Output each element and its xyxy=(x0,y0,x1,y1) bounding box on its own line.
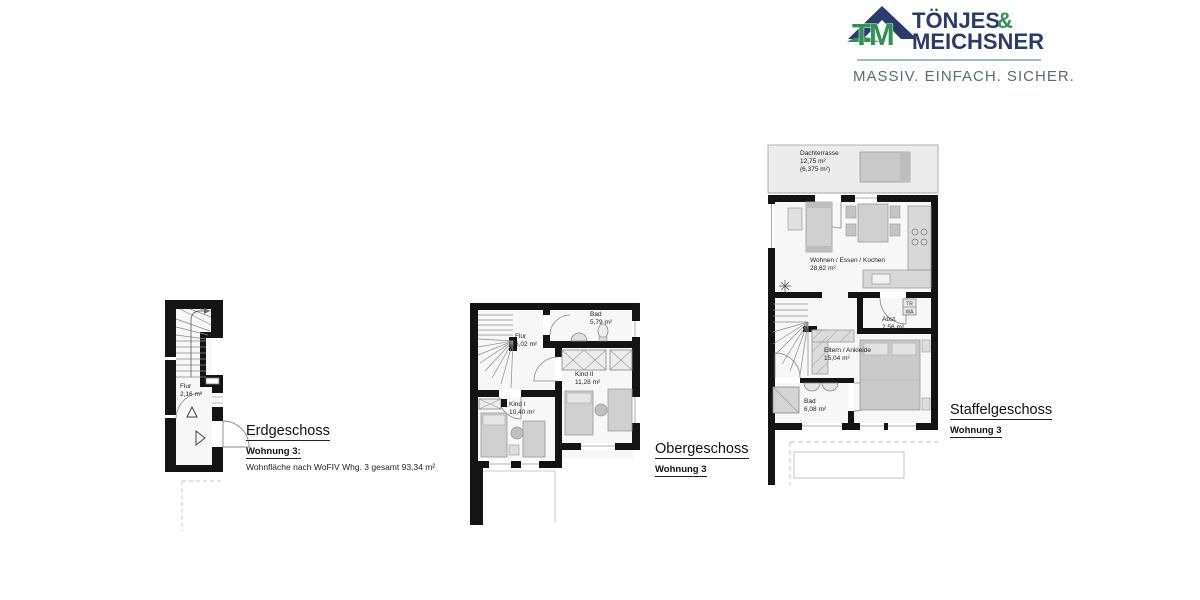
room-label-wohnen: Wohnen / Essen / Kochen 28,62 m² xyxy=(810,257,885,273)
washer-dryer-symbol: TR WA xyxy=(903,299,916,316)
room-area: 2,16 m² xyxy=(180,391,202,399)
company-tagline: MASSIV. EINFACH. SICHER. xyxy=(853,68,1075,85)
erdgeschoss-apartment-label: Wohnung 3: xyxy=(246,446,301,459)
washer-label: WA xyxy=(906,310,915,316)
toilet-symbol xyxy=(599,337,607,341)
staffelgeschoss-plan: TR WA Dachterrasse xyxy=(760,140,960,490)
room-label-bad-og: Bad 5,79 m² xyxy=(590,311,612,327)
chair-symbol xyxy=(595,404,607,416)
company-logo: TM TÖNJES & MEICHSNER xyxy=(845,4,1055,71)
logo-mark-text: TM xyxy=(852,17,893,52)
balcony-outline xyxy=(794,452,904,478)
room-area: 11,28 m² xyxy=(575,379,600,387)
room-label-abstell: Abst. 2,56 m² xyxy=(882,316,904,332)
lounger-symbol xyxy=(900,152,910,182)
obergeschoss-title: Obergeschoss xyxy=(655,441,749,459)
window xyxy=(212,393,223,407)
window xyxy=(206,378,219,384)
floorplan-sheet: { "logo": { "mark": "TM", "brand_top": "… xyxy=(0,0,1200,600)
obergeschoss-plan: Flur 5,02 m² Bad 5,79 m² Kind II 11,28 m… xyxy=(465,295,645,540)
room-name: Bad xyxy=(804,398,826,406)
room-label-dachterrasse: Dachterrasse 12,75 m² (6,375 m²) xyxy=(800,150,839,174)
room-area: 12,75 m² xyxy=(800,158,839,166)
staffelgeschoss-heading: Staffelgeschoss Wohnung 3 xyxy=(950,401,1150,438)
staffelgeschoss-title: Staffelgeschoss xyxy=(950,402,1052,420)
staffelgeschoss-apartment-label: Wohnung 3 xyxy=(950,425,1002,438)
dryer-label: TR xyxy=(906,302,913,308)
room-name: Kind II xyxy=(575,371,600,379)
projection-outline xyxy=(790,442,938,485)
room-name: Flur xyxy=(180,383,202,391)
pillow-symbol xyxy=(567,393,591,403)
erdgeschoss-title: Erdgeschoss xyxy=(246,423,330,441)
erdgeschoss-plan: Flur 2,16 m² xyxy=(160,295,280,535)
room-name: Wohnen / Essen / Kochen xyxy=(810,257,885,265)
room-name: Flur xyxy=(515,333,537,341)
staffelgeschoss-plan-drawing: TR WA xyxy=(760,140,960,490)
obergeschoss-plan-drawing xyxy=(465,295,645,540)
chair-symbol xyxy=(511,427,523,439)
room-label-kind1: Kind I 10,40 m² xyxy=(509,401,535,417)
room-area: 2,56 m² xyxy=(882,324,904,332)
logo-brand-line2: MEICHSNER xyxy=(912,29,1044,54)
room-label-flur-og: Flur 5,02 m² xyxy=(515,333,537,349)
room-area: 5,79 m² xyxy=(590,319,612,327)
room-area: 5,02 m² xyxy=(515,341,537,349)
room-label-kind2: Kind II 11,28 m² xyxy=(575,371,600,387)
erdgeschoss-plan-drawing xyxy=(160,295,280,535)
room-label-flur-eg: Flur 2,16 m² xyxy=(180,383,202,399)
obergeschoss-apartment-label: Wohnung 3 xyxy=(655,464,707,477)
projection-outline xyxy=(483,471,555,523)
room-name: Kind I xyxy=(509,401,535,409)
room-area: 15,04 m² xyxy=(824,355,871,363)
room-name: Eltern / Ankleide xyxy=(824,347,871,355)
desk-symbol xyxy=(608,389,632,431)
room-name: Dachterrasse xyxy=(800,150,839,158)
room-name: Bad xyxy=(590,311,612,319)
pillow-symbol xyxy=(483,415,505,425)
room-label-eltern: Eltern / Ankleide 15,04 m² xyxy=(824,347,871,363)
room-area: 6,08 m² xyxy=(804,406,826,414)
room-area-note: (6,375 m²) xyxy=(800,166,839,174)
terrace-area xyxy=(768,145,938,193)
room-area: 28,62 m² xyxy=(810,265,885,273)
room-name: Abst. xyxy=(882,316,904,324)
room-area: 10,40 m² xyxy=(509,409,535,417)
projection-outline xyxy=(182,481,223,531)
nightstand-symbol xyxy=(509,445,519,455)
shower-symbol xyxy=(773,387,799,413)
company-logo-graphic: TM TÖNJES & MEICHSNER xyxy=(845,4,1055,66)
desk-symbol xyxy=(523,421,545,457)
room-label-bad-sg: Bad 6,08 m² xyxy=(804,398,826,414)
